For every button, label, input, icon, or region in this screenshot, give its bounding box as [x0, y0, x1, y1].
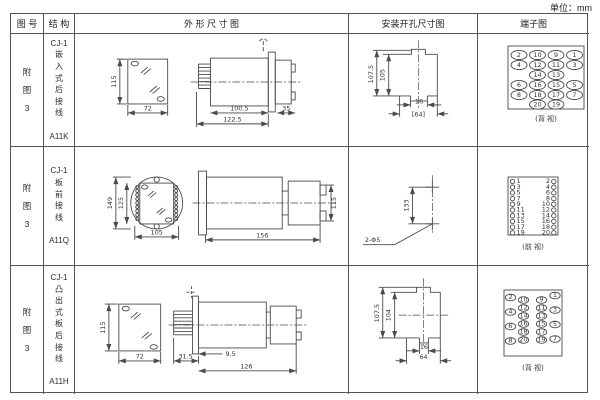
mount-cell-row1: 107.5 105 16 [64]	[349, 34, 478, 147]
terminal-pin	[552, 219, 556, 223]
glass-hatch-icon	[131, 312, 141, 319]
terminal-number: 4	[508, 308, 512, 316]
fig-no-row3: 附 图 3	[11, 266, 44, 394]
terminal-number: 11	[552, 61, 560, 69]
terminal-number: 6	[508, 322, 512, 330]
dim-122-5: 122.5	[223, 115, 242, 123]
dim-64: [64]	[412, 110, 425, 118]
terminal-pin	[552, 224, 556, 228]
terminal-pin	[552, 202, 556, 206]
terminal-number: 7	[572, 91, 576, 99]
glass-hatch-icon	[148, 191, 156, 197]
dim-72: 72	[136, 352, 144, 360]
terminal-pin	[510, 213, 514, 217]
terminal-number: 10	[533, 51, 541, 59]
outline-drawing-row3: 115 72 31.5 9.5 126	[75, 266, 348, 394]
terminal-view-caption: (前 视)	[522, 242, 544, 251]
dim-104: 104	[385, 309, 393, 321]
terminal-number: 18	[519, 328, 527, 336]
mount-drawing-row1: 107.5 105 16 [64]	[349, 34, 477, 147]
fig-no-row2: 附 图 3	[11, 147, 44, 266]
terminal-number: 18	[533, 91, 541, 99]
terminal-pin	[510, 224, 514, 228]
terminal-pin	[510, 190, 514, 194]
terminal-pin	[552, 213, 556, 217]
terminal-number: 5	[553, 320, 557, 328]
terminal-number: 11	[537, 304, 545, 312]
header-terminal: 端子图	[478, 14, 589, 34]
glass-hatch-icon	[157, 207, 165, 213]
glass-hatch-icon	[150, 86, 160, 93]
outline-cell-row1: 115 72 100.5 122.5 35	[75, 34, 349, 147]
terminal-number: 16	[533, 81, 541, 89]
dim-149: 149	[106, 196, 114, 208]
header-mounting: 安装开孔尺寸图	[349, 14, 478, 34]
pins-icon	[174, 311, 193, 335]
terminal-number: 19	[517, 228, 525, 236]
terminal-pin	[552, 207, 556, 211]
terminal-number: 9	[554, 51, 558, 59]
terminal-number: 16	[519, 320, 527, 328]
header-outline: 外 形 尺 寸 图	[75, 14, 349, 34]
terminal-number: 1	[572, 51, 576, 59]
terminal-number: 17	[552, 91, 560, 99]
terminal-number: 20	[533, 100, 541, 108]
dim-107-5: 107.5	[373, 304, 381, 322]
mount-cell-row2: 133 2-Φ5	[349, 147, 478, 266]
mount-cell-row3: 107.5 104 16 64	[349, 266, 478, 394]
terminal-pin	[510, 202, 514, 206]
terminal-number: 5	[572, 81, 576, 89]
terminal-number: 8	[508, 337, 512, 345]
outline-drawing-row2: 149 125 105 156 115	[75, 147, 348, 266]
terminal-diagram-row2: (前 视) 1234567891011121314151617181920	[478, 147, 589, 266]
outline-cell-row2: 149 125 105 156 115	[75, 147, 349, 266]
seal-hole-icon	[122, 306, 129, 311]
seal-hole-icon	[157, 96, 164, 101]
terminal-number: 14	[519, 312, 527, 320]
terminal-pin	[552, 196, 556, 200]
dim-31-5: 31.5	[178, 352, 192, 360]
terminal-number: 8	[517, 91, 521, 99]
hook-icon	[259, 38, 267, 51]
terminal-pin	[510, 185, 514, 189]
structure-row3: CJ-1 凸 出 式 板 后 接 线 A11H	[44, 266, 75, 394]
seal-hole-icon	[142, 184, 148, 188]
fig-no-row1: 附 图 3	[11, 34, 44, 147]
terminal-number: 20	[542, 228, 550, 236]
datasheet-page: 单位：mm 图 号 结 构 外 形 尺 寸 图 安装开孔尺寸图 端子图 附 图 …	[0, 0, 600, 400]
terminal-number: 17	[537, 328, 545, 336]
dim-64: 64	[419, 353, 427, 361]
dim-100-5: 100.5	[230, 104, 249, 112]
dim-16: 16	[420, 343, 428, 351]
dim-9-5: 9.5	[225, 350, 235, 358]
terminal-number: 3	[553, 306, 557, 314]
terminal-number: 6	[517, 81, 521, 89]
dimension-table: 图 号 结 构 外 形 尺 寸 图 安装开孔尺寸图 端子图 附 图 3 CJ-1…	[10, 13, 588, 393]
header-structure: 结 构	[44, 14, 75, 34]
terminal-pin	[510, 179, 514, 183]
glass-hatch-icon	[142, 332, 152, 339]
terminal-number: 19	[552, 100, 560, 108]
seal-hole-icon	[131, 61, 138, 66]
terminal-view-caption: (背 视)	[522, 363, 544, 372]
terminal-number: 12	[533, 61, 541, 69]
terminal-cell-row1: (背 视) 2109141211314136161558181772019	[478, 34, 589, 147]
dim-105: 105	[151, 228, 163, 236]
outline-drawing-row1: 115 72 100.5 122.5 35	[75, 34, 348, 147]
dim-156: 156	[256, 231, 268, 239]
outline-cell-row3: 115 72 31.5 9.5 126	[75, 266, 349, 394]
terminal-number: 15	[537, 320, 545, 328]
terminal-number: 13	[537, 312, 545, 320]
terminal-number: 9	[539, 296, 543, 304]
terminal-number: 3	[572, 61, 576, 69]
terminal-pin	[510, 230, 514, 234]
terminal-cell-row2: (前 视) 1234567891011121314151617181920	[478, 147, 589, 266]
dim-2-phi5: 2-Φ5	[365, 236, 381, 244]
seal-hole-icon	[150, 345, 157, 350]
terminal-number: 10	[519, 296, 527, 304]
dim-72: 72	[144, 104, 152, 112]
dim-115: 115	[110, 75, 118, 87]
glass-hatch-icon	[141, 67, 151, 74]
terminal-view-caption: (背 视)	[535, 114, 557, 123]
terminal-pin	[510, 207, 514, 211]
terminal-number: 19	[537, 336, 545, 344]
terminal-pin	[552, 230, 556, 234]
dim-115: 115	[330, 196, 338, 208]
terminal-pin	[552, 190, 556, 194]
terminal-number: 2	[517, 51, 521, 59]
dim-35: 35	[282, 104, 290, 112]
terminal-diagram-row1: (背 视) 2109141211314136161558181772019	[478, 34, 589, 147]
dim-105: 105	[379, 68, 387, 80]
structure-row2: CJ-1 板 前 接 线 A11Q	[44, 147, 75, 266]
dim-125: 125	[117, 196, 125, 208]
header-fig-no: 图 号	[11, 14, 44, 34]
terminal-diagram-row3: (背 视) 2468101214161820911131517191357	[478, 266, 589, 394]
terminal-pin	[510, 196, 514, 200]
dim-115: 115	[99, 321, 107, 333]
terminal-strip-icon	[136, 185, 178, 220]
pins-icon	[199, 64, 211, 88]
terminal-number: 7	[553, 335, 557, 343]
terminal-number: 2	[508, 293, 512, 301]
terminal-pin	[552, 185, 556, 189]
terminal-pin	[552, 179, 556, 183]
mount-drawing-row3: 107.5 104 16 64	[349, 266, 477, 394]
dim-107-5: 107.5	[367, 64, 375, 82]
terminal-number: 14	[533, 71, 541, 79]
screw-hole-icon	[154, 177, 159, 182]
mount-drawing-row2: 133 2-Φ5	[349, 147, 477, 266]
terminal-cell-row3: (背 视) 2468101214161820911131517191357	[478, 266, 589, 394]
terminal-number: 15	[552, 81, 560, 89]
dim-133: 133	[403, 199, 411, 211]
structure-row1: CJ-1 嵌 入 式 后 接 线 A11K	[44, 34, 75, 147]
terminal-number: 1	[553, 291, 557, 299]
seal-hole-icon	[165, 217, 171, 221]
dim-16: 16	[415, 97, 423, 105]
terminal-number: 12	[519, 304, 527, 312]
terminal-number: 13	[552, 71, 560, 79]
dim-126: 126	[240, 362, 252, 370]
terminal-number: 4	[517, 61, 521, 69]
terminal-number: 20	[519, 336, 527, 344]
terminal-pin	[510, 219, 514, 223]
